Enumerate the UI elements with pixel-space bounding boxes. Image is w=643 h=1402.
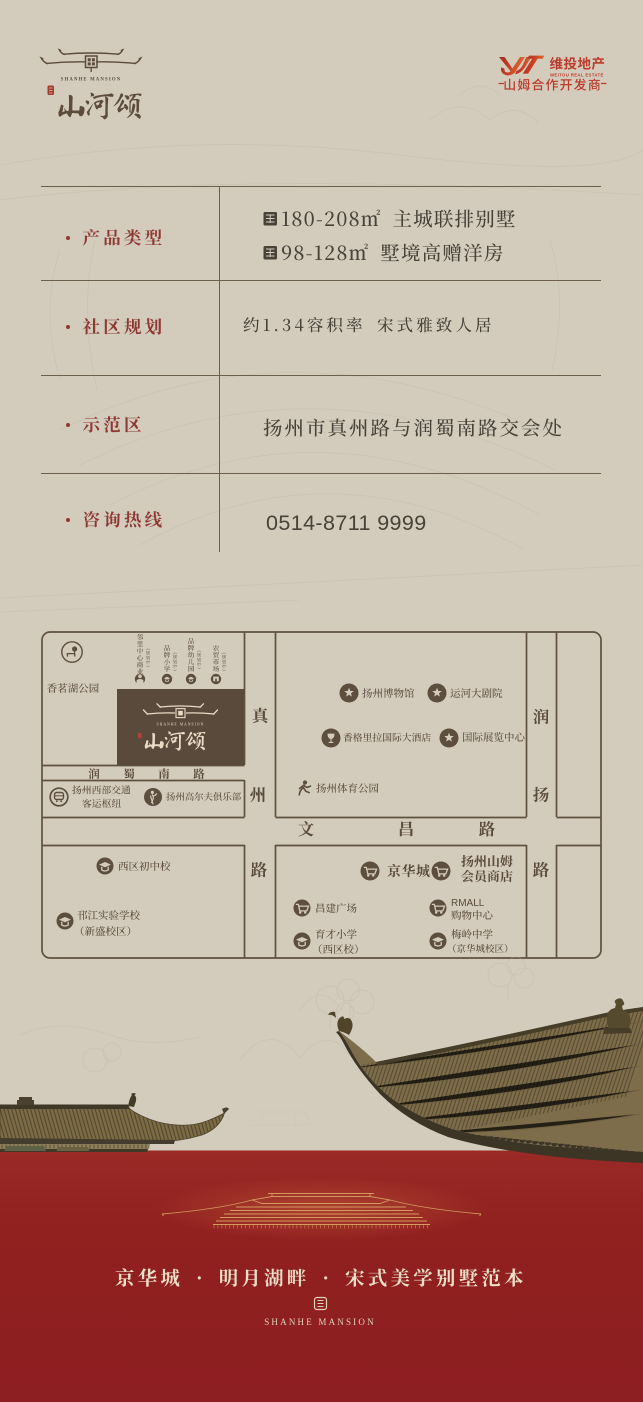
- svg-text:SHANHE MANSION: SHANHE MANSION: [157, 723, 205, 727]
- svg-text:SHANHE MANSION: SHANHE MANSION: [264, 1317, 376, 1327]
- svg-text:0514-8711 9999: 0514-8711 9999: [266, 511, 427, 535]
- svg-text:SHANHE MANSION: SHANHE MANSION: [61, 78, 122, 83]
- svg-text:WEITOU REAL ESTATE: WEITOU REAL ESTATE: [550, 73, 604, 78]
- svg-text:RMALL: RMALL: [451, 898, 485, 909]
